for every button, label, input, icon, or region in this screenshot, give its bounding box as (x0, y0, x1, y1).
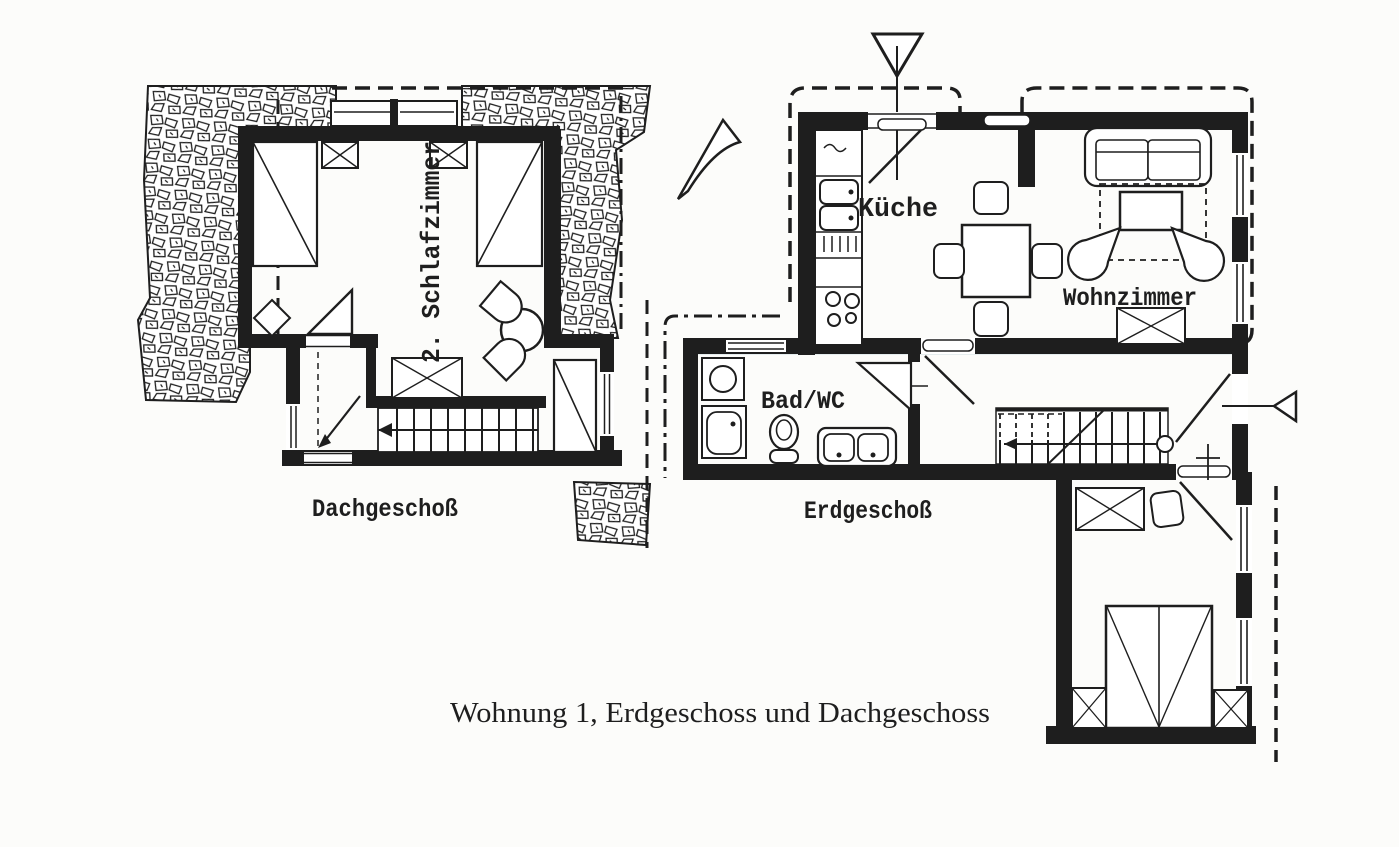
window-symbol (1232, 262, 1248, 324)
window-symbol (726, 340, 786, 352)
window-symbol (1232, 153, 1248, 217)
double-sink-symbol (818, 428, 896, 466)
dachgeschoss-plan: 2. Schlafzimmer Dachgeschoß (138, 86, 650, 548)
entrance-marker-icon (873, 34, 922, 180)
floor-label-dachgeschoss: Dachgeschoß (312, 495, 458, 524)
crossed-box-symbol (322, 142, 358, 168)
room-label-schlafzimmer: 2. Schlafzimmer (417, 141, 447, 363)
chair-symbol (974, 302, 1008, 336)
plan-caption: Wohnung 1, Erdgeschoss und Dachgeschoss (450, 697, 990, 729)
bed-symbol (477, 142, 542, 266)
north-arrow-icon (678, 120, 740, 199)
erdgeschoss-plan: Küche Wohnzimmer Bad/WC Erdgeschoß (665, 34, 1296, 762)
dormer-window-symbol (331, 99, 457, 128)
chair-symbol (974, 182, 1008, 214)
stairs-symbol (996, 408, 1173, 466)
threshold-symbol (984, 115, 1030, 126)
toilet-symbol (770, 415, 798, 463)
chair-symbol (1032, 244, 1062, 278)
door-symbol (1176, 444, 1232, 540)
entrance-door-symbol (868, 112, 936, 183)
newel-post-symbol (1157, 436, 1173, 452)
crossed-box-symbol (1076, 488, 1144, 530)
room-label-bad-wc: Bad/WC (761, 387, 845, 416)
window-symbol (600, 372, 614, 436)
armchair-symbol (1068, 228, 1120, 280)
sofa-symbol (1085, 128, 1211, 186)
stairs-symbol (378, 408, 538, 452)
door-symbol (306, 290, 352, 348)
kitchen-counter-symbol (815, 130, 862, 345)
roof-hatch-bottom-right (574, 482, 650, 545)
room-label-wohnzimmer: Wohnzimmer (1063, 284, 1197, 313)
shower-symbol (702, 406, 746, 458)
scanned-floorplan-page: 2. Schlafzimmer Dachgeschoß (0, 0, 1399, 847)
crossed-box-symbol (392, 358, 462, 398)
room-label-kueche: Küche (858, 195, 938, 225)
floor-label-erdgeschoss: Erdgeschoß (804, 497, 932, 526)
bed-symbol (253, 142, 317, 266)
crossed-box-symbol (1214, 690, 1248, 728)
door-symbol (858, 362, 928, 410)
crossed-box-symbol (1117, 308, 1185, 344)
entrance-marker-icon (1274, 392, 1296, 421)
armchair-symbol (1172, 228, 1224, 281)
window-symbol (1236, 505, 1252, 573)
chair-symbol (934, 244, 964, 278)
crossed-box-symbol (1072, 688, 1106, 728)
chair-symbol (1150, 490, 1184, 528)
coffee-table-symbol (1120, 192, 1182, 230)
dining-table-symbol (934, 182, 1062, 336)
diamond-stool-symbol (254, 300, 290, 336)
floorplan-drawing: 2. Schlafzimmer Dachgeschoß (0, 0, 1399, 847)
window-symbol (286, 404, 300, 450)
window-symbol (1236, 618, 1252, 686)
bed-symbol (554, 360, 596, 452)
door-symbol (921, 338, 975, 404)
double-bed-symbol (1106, 606, 1212, 728)
bedroom (1072, 444, 1252, 728)
washing-machine-symbol (702, 358, 744, 400)
